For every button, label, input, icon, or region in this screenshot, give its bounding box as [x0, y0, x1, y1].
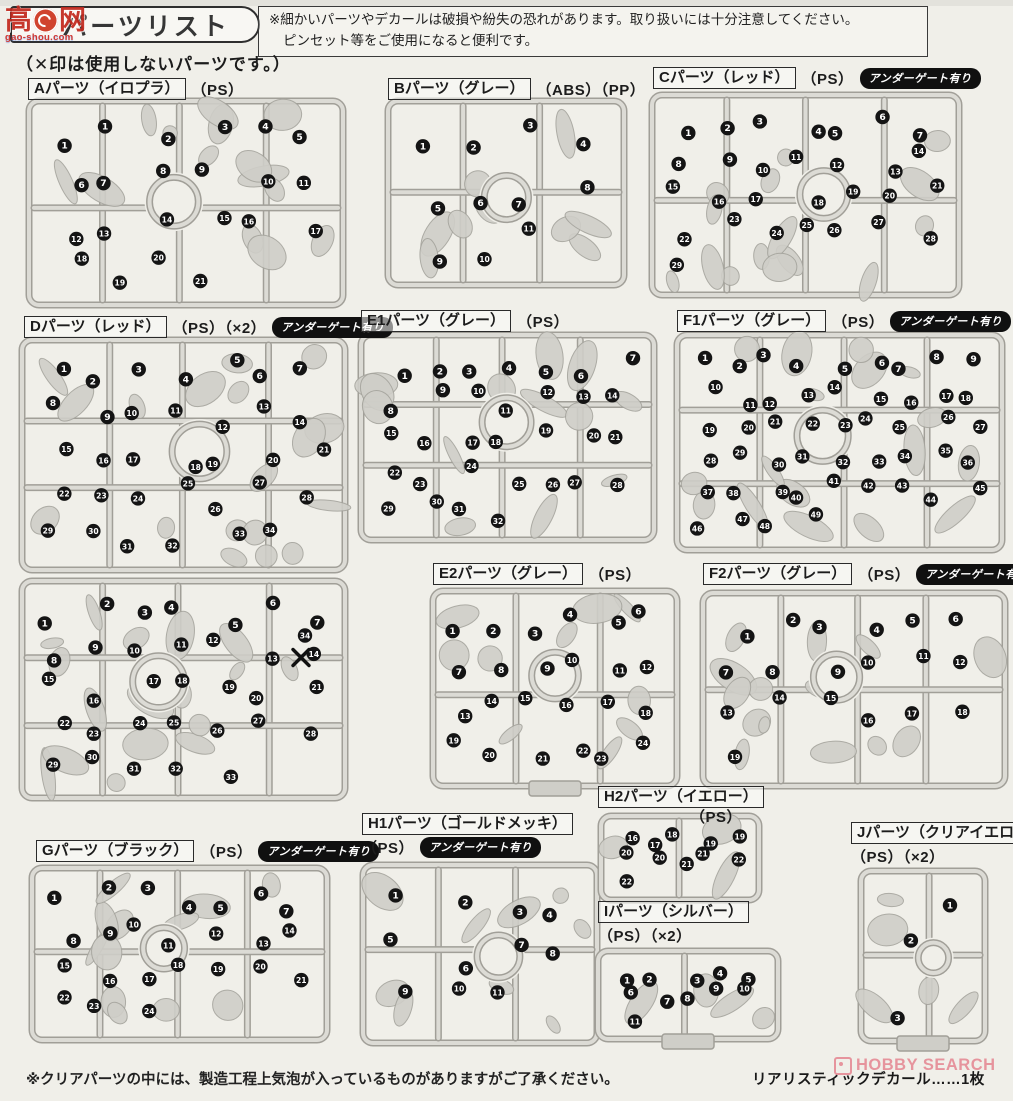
part-number-badge: 18 — [638, 706, 652, 720]
svg-text:16: 16 — [105, 977, 116, 986]
svg-text:9: 9 — [440, 385, 446, 396]
svg-text:1: 1 — [420, 141, 426, 152]
part-number-badge: 11 — [499, 403, 513, 417]
runner-F1-diagram: 1234567891011121314151617181920212223242… — [673, 331, 1006, 554]
svg-text:11: 11 — [918, 652, 929, 661]
svg-text:15: 15 — [44, 675, 55, 684]
svg-text:22: 22 — [60, 719, 71, 728]
undergate-badge: アンダーゲート有り — [420, 837, 541, 858]
part-number-badge: 32 — [169, 761, 183, 775]
part-number-badge: 11 — [628, 1014, 642, 1028]
svg-text:21: 21 — [932, 182, 943, 191]
svg-text:25: 25 — [894, 423, 905, 432]
svg-text:15: 15 — [826, 694, 837, 703]
runner-A-diagram: 1123456789101112131415161718192021 — [25, 97, 347, 309]
svg-text:9: 9 — [713, 984, 719, 995]
part-number-badge: 7 — [279, 904, 293, 918]
svg-text:4: 4 — [168, 603, 174, 614]
part-number-badge: 31 — [120, 539, 134, 553]
part-number-badge: 31 — [795, 449, 809, 463]
part-number-badge: 13 — [888, 164, 902, 178]
part-number-badge: 9 — [195, 162, 209, 176]
part-number-badge: 7 — [891, 362, 905, 376]
part-number-badge: 4 — [576, 137, 590, 151]
part-number-badge: 17 — [601, 695, 615, 709]
svg-text:16: 16 — [863, 716, 874, 725]
svg-text:3: 3 — [517, 907, 523, 918]
svg-text:22: 22 — [621, 877, 632, 886]
svg-text:11: 11 — [630, 1018, 641, 1027]
part-number-badge: 1 — [416, 139, 430, 153]
runner-G-diagram: 123456789101112131415161718192021222324 — [28, 864, 331, 1044]
svg-text:24: 24 — [133, 494, 144, 503]
svg-text:7: 7 — [518, 940, 524, 951]
svg-text:42: 42 — [863, 482, 874, 491]
part-number-badge: 5 — [611, 615, 625, 629]
part-number-badge: 8 — [580, 180, 594, 194]
svg-text:1: 1 — [51, 893, 57, 904]
part-number-badge: 25 — [181, 476, 195, 490]
part-number-badge: 11 — [916, 649, 930, 663]
svg-text:7: 7 — [917, 130, 923, 141]
part-number-badge: 23 — [727, 212, 741, 226]
svg-text:3: 3 — [894, 1013, 900, 1024]
part-number-badge: 8 — [765, 665, 779, 679]
svg-text:30: 30 — [87, 753, 98, 762]
part-number-badge: 6 — [624, 985, 638, 999]
svg-text:6: 6 — [952, 614, 958, 625]
svg-text:44: 44 — [925, 496, 936, 505]
part-number-badge: 7 — [719, 665, 733, 679]
part-number-badge: 22 — [620, 874, 634, 888]
svg-text:21: 21 — [610, 433, 621, 442]
svg-text:8: 8 — [550, 949, 556, 960]
part-number-badge: 49 — [809, 507, 823, 521]
svg-text:19: 19 — [213, 965, 224, 974]
part-number-badge: 16 — [861, 713, 875, 727]
section-H2-header: H2パーツ（イエロー） — [598, 786, 764, 808]
svg-text:24: 24 — [135, 719, 146, 728]
part-number-badge: 24 — [142, 1004, 156, 1018]
part-number-badge: 7 — [452, 665, 466, 679]
part-number-badge: 8 — [384, 404, 398, 418]
part-number-badge: 15 — [217, 211, 231, 225]
watermark-mascot-icon — [33, 8, 58, 33]
svg-text:18: 18 — [177, 677, 188, 686]
part-number-badge: 7 — [293, 361, 307, 375]
svg-text:10: 10 — [710, 383, 721, 392]
svg-text:4: 4 — [793, 361, 799, 372]
part-number-badge: 20 — [619, 845, 633, 859]
part-number-badge: 2 — [466, 140, 480, 154]
part-number-badge: 4 — [870, 623, 884, 637]
part-number-badge: 14 — [160, 212, 174, 226]
svg-text:18: 18 — [957, 708, 968, 717]
part-number-badge: 17 — [142, 972, 156, 986]
svg-text:15: 15 — [386, 429, 397, 438]
part-number-badge: 28 — [304, 726, 318, 740]
part-number-badge: 43 — [895, 478, 909, 492]
part-number-badge: 13 — [720, 705, 734, 719]
section-J-label: Jパーツ（クリアイエロー） — [851, 822, 1013, 844]
part-number-badge: 22 — [388, 465, 402, 479]
section-E2-material: （PS） — [589, 564, 641, 585]
part-number-badge: 16 — [96, 453, 110, 467]
svg-text:8: 8 — [684, 994, 690, 1005]
svg-text:10: 10 — [863, 659, 874, 668]
part-number-badge: 25 — [892, 420, 906, 434]
part-number-badge: 5 — [905, 613, 919, 627]
part-number-badge: 1 — [681, 126, 695, 140]
part-number-badge: 17 — [126, 452, 140, 466]
part-number-badge: 23 — [594, 751, 608, 765]
svg-text:35: 35 — [940, 447, 951, 456]
svg-text:1: 1 — [702, 353, 708, 364]
svg-text:15: 15 — [61, 445, 72, 454]
svg-text:21: 21 — [319, 446, 330, 455]
svg-text:4: 4 — [717, 968, 723, 979]
part-number-badge: 38 — [726, 486, 740, 500]
part-number-badge: 18 — [811, 195, 825, 209]
svg-text:24: 24 — [771, 229, 782, 238]
svg-text:12: 12 — [642, 663, 653, 672]
part-number-badge: 6 — [253, 369, 267, 383]
section-H1-subheader: （PS）アンダーゲート有り — [362, 837, 541, 858]
svg-text:19: 19 — [705, 839, 716, 848]
svg-text:22: 22 — [679, 235, 690, 244]
svg-text:31: 31 — [797, 452, 808, 461]
svg-text:22: 22 — [807, 420, 818, 429]
svg-text:4: 4 — [874, 625, 880, 636]
svg-text:32: 32 — [170, 765, 181, 774]
part-number-badge: 3 — [132, 362, 146, 376]
svg-text:12: 12 — [71, 235, 82, 244]
page-title: パーツリスト — [62, 7, 230, 43]
section-G-label: Gパーツ（ブラック） — [36, 840, 194, 862]
part-number-badge: 18 — [171, 958, 185, 972]
part-number-badge: 32 — [491, 514, 505, 528]
section-F2-material: （PS） — [858, 564, 910, 585]
part-number-badge: 20 — [883, 188, 897, 202]
part-number-badge: 2 — [100, 597, 114, 611]
svg-text:14: 14 — [774, 693, 785, 702]
svg-text:22: 22 — [59, 490, 70, 499]
svg-text:18: 18 — [667, 830, 678, 839]
svg-text:1: 1 — [42, 618, 48, 629]
svg-text:1: 1 — [744, 631, 750, 642]
watermark-char-1: 高 — [5, 7, 32, 34]
svg-text:16: 16 — [89, 697, 100, 706]
part-number-badge: 11 — [161, 938, 175, 952]
svg-text:27: 27 — [254, 479, 265, 488]
svg-text:24: 24 — [638, 739, 649, 748]
svg-text:9: 9 — [92, 643, 98, 654]
part-number-badge: 12 — [69, 232, 83, 246]
part-number-badge: 18 — [665, 827, 679, 841]
svg-text:21: 21 — [195, 277, 206, 286]
part-number-badge: 12 — [640, 660, 654, 674]
part-number-badge: 16 — [87, 693, 101, 707]
svg-text:33: 33 — [874, 458, 885, 467]
part-number-badge: 10 — [471, 384, 485, 398]
svg-text:22: 22 — [390, 469, 401, 478]
part-number-badge: 4 — [811, 125, 825, 139]
section-I-header: Iパーツ（シルバー） — [598, 901, 749, 923]
part-number-badge: 13 — [458, 709, 472, 723]
part-number-badge: 9 — [433, 254, 447, 268]
part-number-badge: 11 — [297, 176, 311, 190]
part-number-badge: 21 — [317, 442, 331, 456]
part-number-badge: 22 — [806, 416, 820, 430]
svg-text:17: 17 — [907, 709, 918, 718]
svg-text:9: 9 — [402, 987, 408, 998]
section-F1-label: F1パーツ（グレー） — [677, 310, 826, 332]
part-number-badge: 3 — [812, 620, 826, 634]
part-number-badge: 14 — [772, 690, 786, 704]
svg-text:8: 8 — [584, 182, 590, 193]
part-number-badge: 9 — [540, 661, 554, 675]
part-number-badge: 29 — [670, 258, 684, 272]
part-number-badge: 1 — [943, 898, 957, 912]
part-number-badge: 8 — [66, 934, 80, 948]
part-number-badge: 25 — [512, 477, 526, 491]
hobby-search-text: HOBBY SEARCH — [856, 1056, 996, 1075]
part-number-badge: 17 — [905, 706, 919, 720]
section-B-label: Bパーツ（グレー） — [388, 78, 531, 100]
svg-text:28: 28 — [612, 481, 623, 490]
part-number-badge: 28 — [704, 454, 718, 468]
svg-text:3: 3 — [222, 122, 228, 133]
part-number-badge: 7 — [310, 615, 324, 629]
part-number-badge: 19 — [846, 185, 860, 199]
svg-text:19: 19 — [448, 736, 459, 745]
svg-text:25: 25 — [183, 479, 194, 488]
part-number-badge: 26 — [546, 478, 560, 492]
part-number-badge: 3 — [462, 364, 476, 378]
svg-text:2: 2 — [165, 134, 171, 145]
svg-text:17: 17 — [941, 392, 952, 401]
svg-text:21: 21 — [770, 418, 781, 427]
svg-text:7: 7 — [895, 364, 901, 375]
svg-text:5: 5 — [435, 203, 441, 214]
notice-line-1: ※細かいパーツやデカールは破損や紛失の恐れがあります。取り扱いには十分注意してく… — [269, 10, 917, 31]
part-number-badge: 28 — [923, 231, 937, 245]
svg-text:26: 26 — [943, 413, 954, 422]
part-number-badge: 8 — [46, 396, 60, 410]
svg-text:12: 12 — [764, 400, 775, 409]
svg-text:29: 29 — [43, 527, 54, 536]
part-number-badge: 17 — [648, 838, 662, 852]
part-number-badge: 5 — [230, 353, 244, 367]
gao-shou-logo: 高 网 — [5, 7, 86, 34]
svg-text:18: 18 — [190, 463, 201, 472]
part-number-badge: 3 — [756, 348, 770, 362]
svg-text:6: 6 — [879, 358, 885, 369]
part-number-badge: 18 — [75, 251, 89, 265]
part-number-badge: 15 — [824, 691, 838, 705]
svg-text:9: 9 — [970, 354, 976, 365]
part-number-badge: 3 — [138, 605, 152, 619]
part-number-badge: 19 — [703, 423, 717, 437]
part-number-badge: 20 — [741, 420, 755, 434]
part-number-badge: 6 — [631, 604, 645, 618]
svg-text:5: 5 — [842, 364, 848, 375]
part-number-badge: 5 — [228, 618, 242, 632]
svg-text:18: 18 — [77, 255, 88, 264]
part-number-badge: 21 — [768, 414, 782, 428]
part-number-badge: 24 — [133, 716, 147, 730]
part-number-badge: 1 — [388, 888, 402, 902]
svg-text:21: 21 — [681, 860, 692, 869]
svg-text:16: 16 — [98, 456, 109, 465]
svg-text:12: 12 — [542, 388, 553, 397]
svg-text:15: 15 — [876, 395, 887, 404]
svg-text:6: 6 — [477, 198, 483, 209]
part-number-badge: 6 — [74, 178, 88, 192]
section-F1-header: F1パーツ（グレー）（PS）アンダーゲート有り — [677, 310, 1011, 332]
part-number-badge: 26 — [210, 723, 224, 737]
svg-text:1: 1 — [401, 371, 407, 382]
part-number-badge: 24 — [636, 736, 650, 750]
svg-text:12: 12 — [208, 636, 219, 645]
svg-text:15: 15 — [520, 694, 531, 703]
part-number-badge: 22 — [57, 990, 71, 1004]
part-number-badge: 33 — [872, 454, 886, 468]
section-C-header: Cパーツ（レッド）（PS）アンダーゲート有り — [653, 67, 981, 89]
clear-parts-note: ※クリアパーツの中には、製造工程上気泡が入っているものがありますがご了承ください… — [26, 1068, 619, 1089]
svg-text:14: 14 — [914, 147, 925, 156]
svg-text:4: 4 — [506, 363, 512, 374]
runner-H1-diagram: 1234567891011 — [359, 861, 601, 1047]
svg-text:16: 16 — [714, 198, 725, 207]
svg-text:8: 8 — [498, 665, 504, 676]
part-number-badge: 10 — [861, 655, 875, 669]
part-number-badge: 19 — [539, 423, 553, 437]
svg-text:23: 23 — [96, 491, 107, 500]
svg-text:18: 18 — [640, 709, 651, 718]
svg-text:13: 13 — [578, 393, 589, 402]
part-number-badge: 19 — [222, 680, 236, 694]
svg-text:19: 19 — [730, 753, 741, 762]
section-E2-header: E2パーツ（グレー）（PS） — [433, 563, 641, 585]
svg-text:9: 9 — [544, 664, 550, 675]
section-F2-header: F2パーツ（グレー）（PS）アンダーゲート有り — [703, 563, 1013, 585]
svg-text:17: 17 — [149, 677, 160, 686]
part-number-badge: 7 — [913, 128, 927, 142]
section-H2-material: （PS） — [690, 806, 742, 827]
svg-text:20: 20 — [589, 431, 600, 440]
part-number-badge: 4 — [542, 908, 556, 922]
runner-D-2-diagram: 1234567891011121314151617181920212223242… — [18, 577, 349, 802]
svg-text:6: 6 — [78, 180, 84, 191]
svg-text:5: 5 — [615, 618, 621, 629]
part-number-badge: 6 — [574, 369, 588, 383]
part-number-badge: 4 — [182, 900, 196, 914]
svg-text:9: 9 — [104, 412, 110, 423]
svg-text:10: 10 — [479, 255, 490, 264]
svg-text:3: 3 — [145, 883, 151, 894]
part-number-badge: 31 — [452, 502, 466, 516]
part-number-badge: 1 — [47, 891, 61, 905]
part-number-badge: 18 — [175, 673, 189, 687]
part-number-badge: 23 — [94, 488, 108, 502]
part-number-badge: 27 — [251, 714, 265, 728]
svg-text:48: 48 — [759, 522, 770, 531]
svg-text:15: 15 — [219, 214, 230, 223]
svg-text:16: 16 — [627, 834, 638, 843]
svg-text:13: 13 — [722, 708, 733, 717]
part-number-badge: 24 — [464, 459, 478, 473]
part-number-badge: 11 — [789, 150, 803, 164]
section-B-material: （ABS）（PP） — [537, 79, 646, 100]
part-number-badge: 7 — [512, 197, 526, 211]
svg-text:41: 41 — [829, 477, 840, 486]
part-number-badge: 4 — [789, 359, 803, 373]
svg-text:32: 32 — [167, 542, 178, 551]
part-number-badge: 21 — [309, 680, 323, 694]
part-number-badge: 15 — [874, 392, 888, 406]
part-number-badge: 2 — [433, 364, 447, 378]
section-H1-label: H1パーツ（ゴールドメッキ） — [362, 813, 573, 835]
svg-text:4: 4 — [567, 610, 573, 621]
part-number-badge: 5 — [431, 201, 445, 215]
svg-text:20: 20 — [251, 694, 262, 703]
part-number-badge: 27 — [568, 475, 582, 489]
part-number-badge: 42 — [861, 478, 875, 492]
section-A-material: （PS） — [192, 79, 244, 100]
svg-text:6: 6 — [635, 606, 641, 617]
part-number-badge: 20 — [266, 453, 280, 467]
svg-text:13: 13 — [460, 712, 471, 721]
part-number-badge: 9 — [723, 152, 737, 166]
part-number-badge: 3 — [753, 114, 767, 128]
section-C-label: Cパーツ（レッド） — [653, 67, 796, 89]
svg-text:2: 2 — [470, 142, 476, 153]
part-number-badge: 27 — [253, 475, 267, 489]
svg-text:2: 2 — [737, 361, 743, 372]
svg-text:19: 19 — [115, 279, 126, 288]
svg-text:20: 20 — [255, 962, 266, 971]
part-number-badge: 12 — [830, 158, 844, 172]
svg-text:3: 3 — [532, 629, 538, 640]
part-number-badge: 5 — [383, 932, 397, 946]
svg-text:30: 30 — [774, 461, 785, 470]
section-E2-label: E2パーツ（グレー） — [433, 563, 583, 585]
part-number-badge: 2 — [904, 933, 918, 947]
part-number-badge: 3 — [523, 118, 537, 132]
part-number-badge: 23 — [413, 477, 427, 491]
svg-text:2: 2 — [724, 123, 730, 134]
part-number-badge: 40 — [789, 490, 803, 504]
svg-text:7: 7 — [314, 618, 320, 629]
part-number-badge: 29 — [46, 757, 60, 771]
part-number-badge: 9 — [88, 640, 102, 654]
part-number-badge: 22 — [576, 743, 590, 757]
svg-text:1: 1 — [392, 890, 398, 901]
svg-text:5: 5 — [217, 903, 223, 914]
section-J-material: （PS）（×2） — [851, 846, 945, 867]
part-number-badge: 14 — [912, 144, 926, 158]
svg-text:29: 29 — [383, 505, 394, 514]
section-D-material: （PS）（×2） — [173, 317, 267, 338]
svg-text:8: 8 — [160, 166, 166, 177]
svg-text:14: 14 — [295, 418, 306, 427]
section-E1-label: E1パーツ（グレー） — [361, 310, 511, 332]
svg-text:27: 27 — [975, 423, 986, 432]
part-number-badge: 4 — [258, 119, 272, 133]
svg-text:10: 10 — [454, 985, 465, 994]
part-number-badge: 8 — [546, 946, 560, 960]
